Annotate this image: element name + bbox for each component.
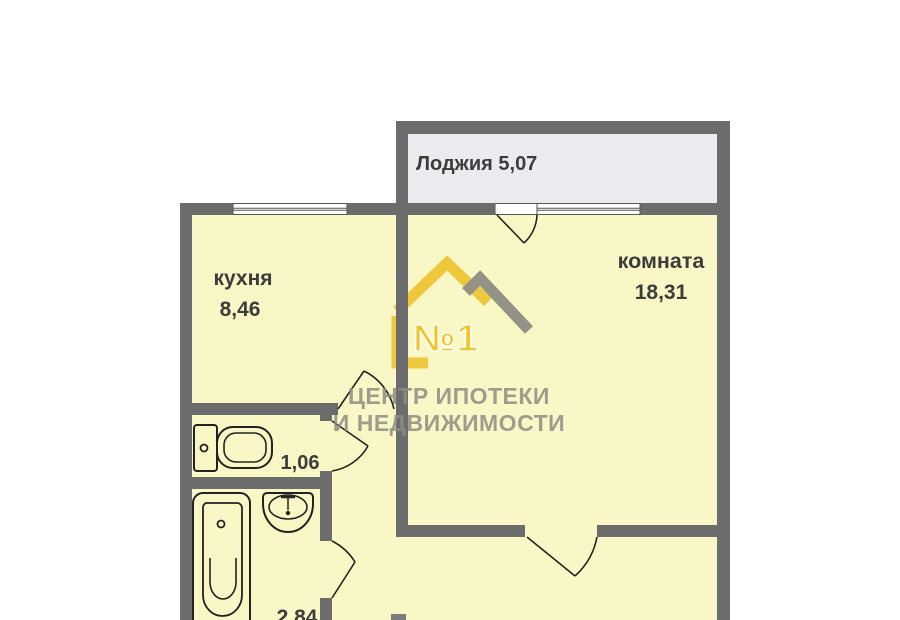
balcony-door-threshold	[495, 204, 537, 215]
wall-wc-right-top	[320, 415, 332, 421]
wall-loggia-left	[396, 121, 408, 215]
wall-loggia-top	[396, 121, 730, 134]
loggia-label: Лоджия 5,07	[416, 153, 537, 175]
wc-area-value: 1,06	[281, 452, 320, 474]
bathroom-area-value: 2,84	[277, 606, 318, 620]
living-room-area-value: 18,31	[635, 281, 688, 304]
wall-right-outer	[717, 121, 730, 620]
kitchen-label: кухня	[213, 267, 272, 290]
wall-kitchen-bottom	[180, 403, 338, 415]
watermark-badge: №1	[413, 318, 479, 360]
wall-kitchen-room-divider	[396, 203, 408, 537]
watermark-line1: ЦЕНТР ИПОТЕКИ	[348, 383, 550, 409]
wall-room-top-right	[640, 203, 717, 215]
kitchen-window	[233, 204, 347, 215]
kitchen-area-value: 8,46	[220, 298, 261, 321]
floor-plan: Лоджия 5,07 кухня 8,46 комната 18,31 1,0…	[0, 0, 900, 620]
floor-plan-canvas: Лоджия 5,07 кухня 8,46 комната 18,31 1,0…	[0, 0, 900, 620]
wall-room-bottom-left	[396, 525, 525, 537]
living-room-label: комната	[618, 249, 706, 273]
wall-stub-bottom	[391, 614, 406, 620]
wall-room-bottom-right	[597, 525, 718, 537]
room-window	[537, 204, 640, 215]
wall-wc-bottom	[180, 477, 332, 489]
wall-bath-right-bottom	[320, 598, 332, 620]
wall-room-top-left	[408, 203, 495, 215]
watermark-line2: И НЕДВИЖИМОСТИ	[333, 410, 565, 436]
